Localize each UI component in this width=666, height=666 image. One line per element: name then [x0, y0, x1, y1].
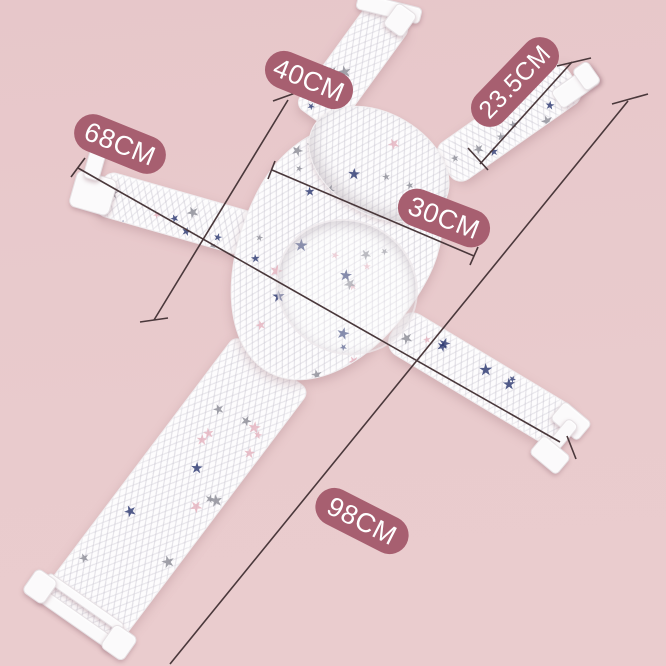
product-photo-stage: ★★★★★★ ★★★★★★★ ★★★★★★★★★ ★★★★★★★★★★★★★★ … [0, 0, 666, 666]
dimension-line-overall-width [71, 158, 576, 459]
dimension-line-overall-length [170, 94, 648, 664]
dimension-line-top-strap [140, 91, 301, 322]
